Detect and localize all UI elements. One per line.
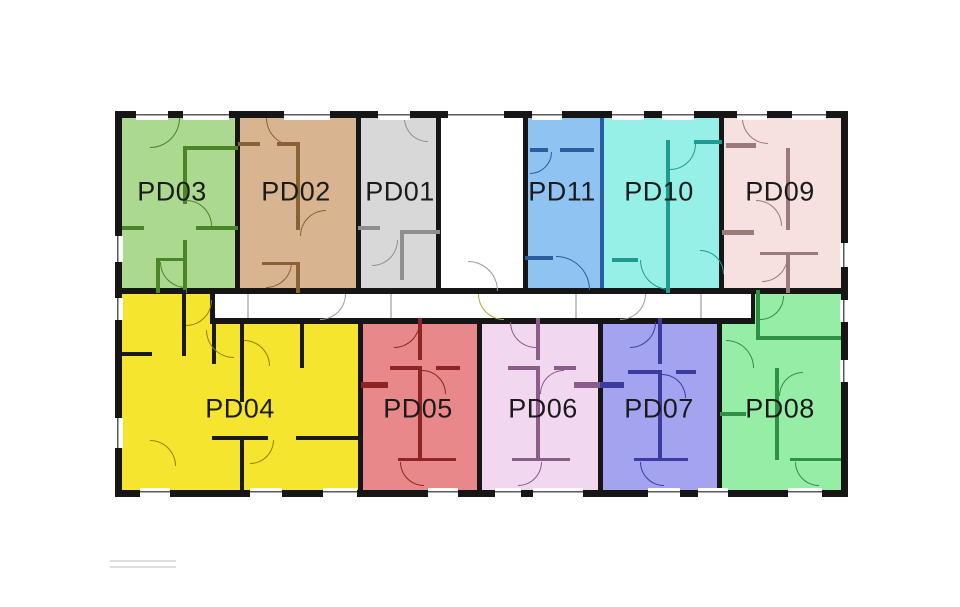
window [648, 488, 680, 497]
window [136, 111, 168, 120]
window [114, 236, 123, 262]
window [140, 488, 170, 497]
floorplan-canvas: PD03PD02PD01PD11PD10PD09PD04PD05PD06PD07… [0, 0, 960, 607]
unit-pd10-label[interactable]: PD10 [624, 179, 694, 206]
window [114, 298, 123, 320]
window [250, 488, 282, 497]
unit-pd09-label[interactable]: PD09 [745, 179, 815, 206]
watermark [110, 560, 176, 572]
window [532, 111, 562, 120]
unit-pd04-label[interactable]: PD04 [205, 396, 275, 423]
unit-pd08-label[interactable]: PD08 [745, 396, 815, 423]
window [840, 360, 849, 382]
window [737, 111, 767, 120]
window [788, 488, 822, 497]
window [428, 488, 458, 497]
window [495, 488, 521, 497]
unit-pd03-label[interactable]: PD03 [137, 179, 207, 206]
window [840, 243, 849, 267]
window [840, 300, 849, 322]
unit-pd05-label[interactable]: PD05 [383, 396, 453, 423]
unit-pd02-label[interactable]: PD02 [261, 179, 331, 206]
window [533, 488, 583, 497]
window [183, 111, 229, 120]
window [323, 488, 357, 497]
window [284, 111, 330, 120]
unit-pd11-label[interactable]: PD11 [528, 179, 596, 206]
window [378, 111, 410, 120]
window [792, 111, 826, 120]
window [448, 111, 504, 120]
window [662, 111, 694, 120]
window [114, 418, 123, 448]
window [612, 111, 644, 120]
window [698, 488, 728, 497]
unit-pd07-label[interactable]: PD07 [624, 396, 694, 423]
outer-wall [115, 111, 848, 497]
unit-pd06-label[interactable]: PD06 [508, 396, 578, 423]
unit-pd01-label[interactable]: PD01 [365, 179, 435, 206]
